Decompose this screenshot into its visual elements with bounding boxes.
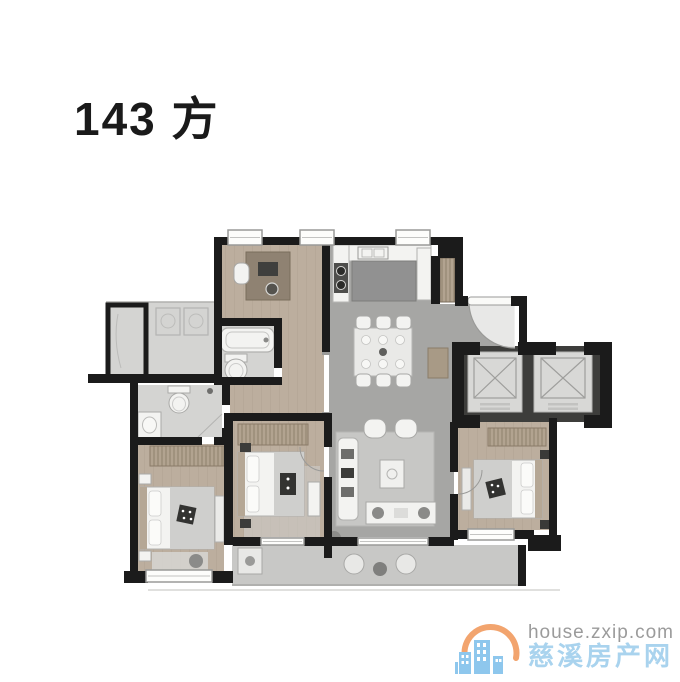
centerpiece (379, 348, 387, 356)
wall (304, 537, 358, 546)
bedroom2 (238, 424, 320, 540)
burner (337, 267, 346, 276)
sofa-cushion (341, 487, 354, 497)
nightstand (540, 520, 549, 529)
wall (214, 377, 282, 385)
bed-throw (176, 505, 196, 525)
wall (322, 237, 330, 352)
wall (431, 256, 440, 304)
coat-closet-icon (440, 258, 455, 302)
balcony-chair-icon (396, 554, 416, 574)
balcony-chair-icon (344, 554, 364, 574)
plant-icon (418, 507, 430, 519)
sofa-cushion (341, 468, 354, 478)
dot (190, 518, 193, 521)
armchair-icon (395, 419, 417, 438)
wall (130, 378, 138, 583)
wall (88, 374, 214, 383)
headboard (238, 452, 245, 516)
site-watermark: house.zxip.com 慈溪房产网 (454, 616, 674, 678)
wall (124, 571, 148, 583)
floor-plan (0, 0, 680, 682)
pillow (247, 486, 259, 512)
nightstand (240, 443, 251, 452)
wall (450, 494, 458, 540)
pillow (149, 520, 161, 545)
burner (337, 281, 346, 290)
toilet-tank (168, 386, 190, 393)
stool-icon (189, 554, 203, 568)
wall (214, 237, 222, 385)
dot (182, 510, 185, 513)
bed-throw (280, 473, 296, 495)
elevator-door-line (480, 408, 510, 411)
headboard (535, 460, 542, 518)
kitchen-island-icon (352, 261, 416, 301)
wall (518, 545, 526, 586)
wall (214, 318, 282, 326)
monitor-icon (258, 262, 278, 276)
wall (233, 537, 261, 546)
entry-door-leaf (468, 297, 515, 305)
dresser (308, 482, 320, 516)
pillow (149, 491, 161, 516)
elevator-door-line (548, 403, 578, 406)
wardrobe-icon (238, 424, 308, 445)
coffee-table-icon (380, 460, 404, 488)
wardrobe-icon (150, 446, 224, 466)
wall (274, 318, 282, 368)
dot (183, 517, 186, 520)
elevator-block (452, 342, 612, 428)
wall (130, 437, 202, 445)
toilet-icon (169, 393, 189, 413)
watermark-site-name: 慈溪房产网 (528, 643, 674, 670)
nightstand (240, 519, 251, 528)
dot (287, 487, 290, 490)
sofa-cushion (341, 449, 354, 459)
balcony-table-icon (373, 562, 387, 576)
wall (455, 296, 468, 306)
sink-basin (143, 417, 157, 433)
wall (450, 422, 458, 472)
bench (215, 496, 224, 542)
site-logo-icon (454, 616, 524, 678)
dot (491, 484, 494, 487)
wall (428, 537, 454, 546)
wall (519, 296, 527, 346)
nightstand (139, 474, 151, 484)
elevator-door-line (548, 408, 578, 411)
dot (492, 491, 495, 494)
wall (224, 413, 233, 545)
logo-arc (464, 627, 516, 666)
dot (287, 478, 290, 481)
wall (212, 571, 233, 583)
pillow (521, 490, 533, 514)
wardrobe-icon (488, 428, 546, 446)
balcony-door-frame (108, 305, 146, 377)
cased-opening-jamb (322, 352, 330, 355)
pillow (247, 456, 259, 482)
wall (324, 413, 332, 447)
living-room (327, 419, 436, 545)
console-decor (394, 508, 408, 518)
shower-head-icon (207, 388, 213, 394)
desk-plant-icon (266, 283, 278, 295)
tub-faucet (264, 338, 269, 343)
dot (189, 511, 192, 514)
corridor-floor (282, 320, 324, 415)
watermark-text: house.zxip.com 慈溪房产网 (528, 623, 674, 670)
bench (462, 468, 471, 510)
dot (497, 485, 500, 488)
desk-chair-icon (234, 263, 249, 284)
wall (222, 385, 230, 405)
nightstand (139, 551, 151, 561)
plant-icon (372, 507, 384, 519)
tall-cabinet-icon (417, 248, 431, 300)
hall-console-icon (428, 348, 448, 378)
watermark-url: house.zxip.com (528, 623, 674, 643)
nightstand (540, 450, 549, 459)
planter-plant (245, 556, 255, 566)
armchair-icon (364, 419, 386, 438)
wall (549, 418, 557, 539)
pillow (521, 463, 533, 487)
wall (233, 413, 332, 421)
headboard (140, 487, 147, 549)
wall (455, 244, 463, 302)
elevator-door-line (480, 403, 510, 406)
